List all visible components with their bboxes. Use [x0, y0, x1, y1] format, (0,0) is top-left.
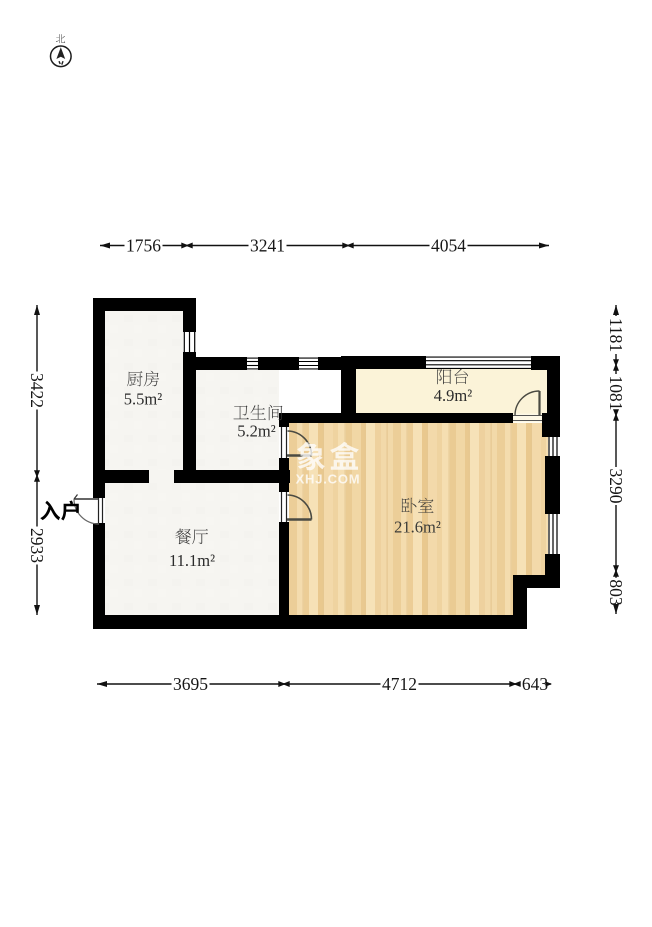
svg-text:3422: 3422: [27, 373, 47, 408]
svg-text:4712: 4712: [382, 674, 417, 694]
svg-text:21.6m²: 21.6m²: [394, 518, 441, 537]
svg-text:643: 643: [522, 674, 549, 694]
svg-text:4054: 4054: [431, 236, 466, 256]
svg-text:803: 803: [606, 579, 626, 606]
svg-text:11.1m²: 11.1m²: [169, 551, 215, 570]
svg-text:3695: 3695: [173, 674, 208, 694]
svg-text:2933: 2933: [27, 528, 47, 563]
svg-text:5.5m²: 5.5m²: [124, 390, 162, 409]
svg-text:5.2m²: 5.2m²: [237, 422, 275, 441]
svg-text:3241: 3241: [250, 236, 285, 256]
svg-text:1181: 1181: [606, 318, 626, 352]
svg-text:4.9m²: 4.9m²: [434, 386, 472, 405]
svg-text:3290: 3290: [606, 469, 626, 504]
svg-text:XHJ.COM: XHJ.COM: [296, 472, 361, 487]
svg-text:1756: 1756: [126, 236, 161, 256]
svg-text:1081: 1081: [606, 376, 626, 411]
